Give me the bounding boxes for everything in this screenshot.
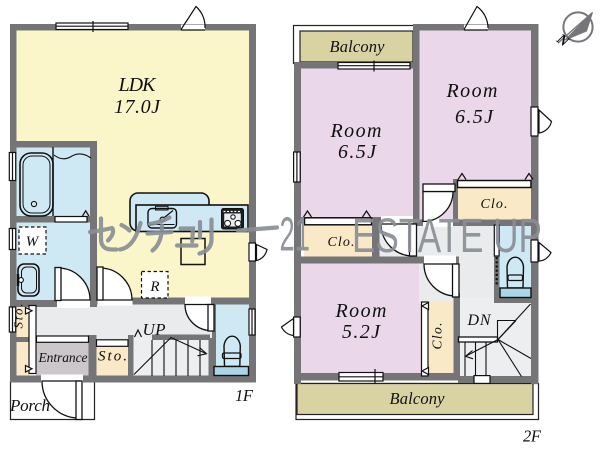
- svg-text:Room: Room: [335, 300, 387, 322]
- svg-text:Balcony: Balcony: [330, 37, 386, 56]
- svg-text:Entrance: Entrance: [38, 350, 88, 365]
- svg-text:6.5J: 6.5J: [455, 106, 494, 128]
- svg-text:5.2J: 5.2J: [342, 321, 381, 343]
- svg-text:2F: 2F: [523, 427, 542, 446]
- svg-text:LDK: LDK: [118, 74, 158, 96]
- svg-text:Clo.: Clo.: [430, 323, 445, 350]
- svg-text:6.5J: 6.5J: [338, 141, 377, 163]
- svg-text:17.0J: 17.0J: [114, 96, 161, 118]
- svg-text:W: W: [26, 234, 40, 250]
- svg-text:Porch: Porch: [9, 396, 50, 415]
- svg-text:Clo.: Clo.: [328, 235, 355, 250]
- svg-text:Balcony: Balcony: [390, 389, 446, 408]
- svg-text:1F: 1F: [235, 386, 254, 405]
- svg-text:R: R: [149, 279, 159, 295]
- svg-text:Room: Room: [446, 80, 498, 102]
- svg-text:21: 21: [280, 209, 310, 262]
- svg-text:Room: Room: [330, 120, 382, 142]
- svg-text:UP: UP: [143, 320, 166, 339]
- svg-text:DN: DN: [467, 312, 492, 329]
- svg-text:ESTATE UP: ESTATE UP: [352, 209, 542, 263]
